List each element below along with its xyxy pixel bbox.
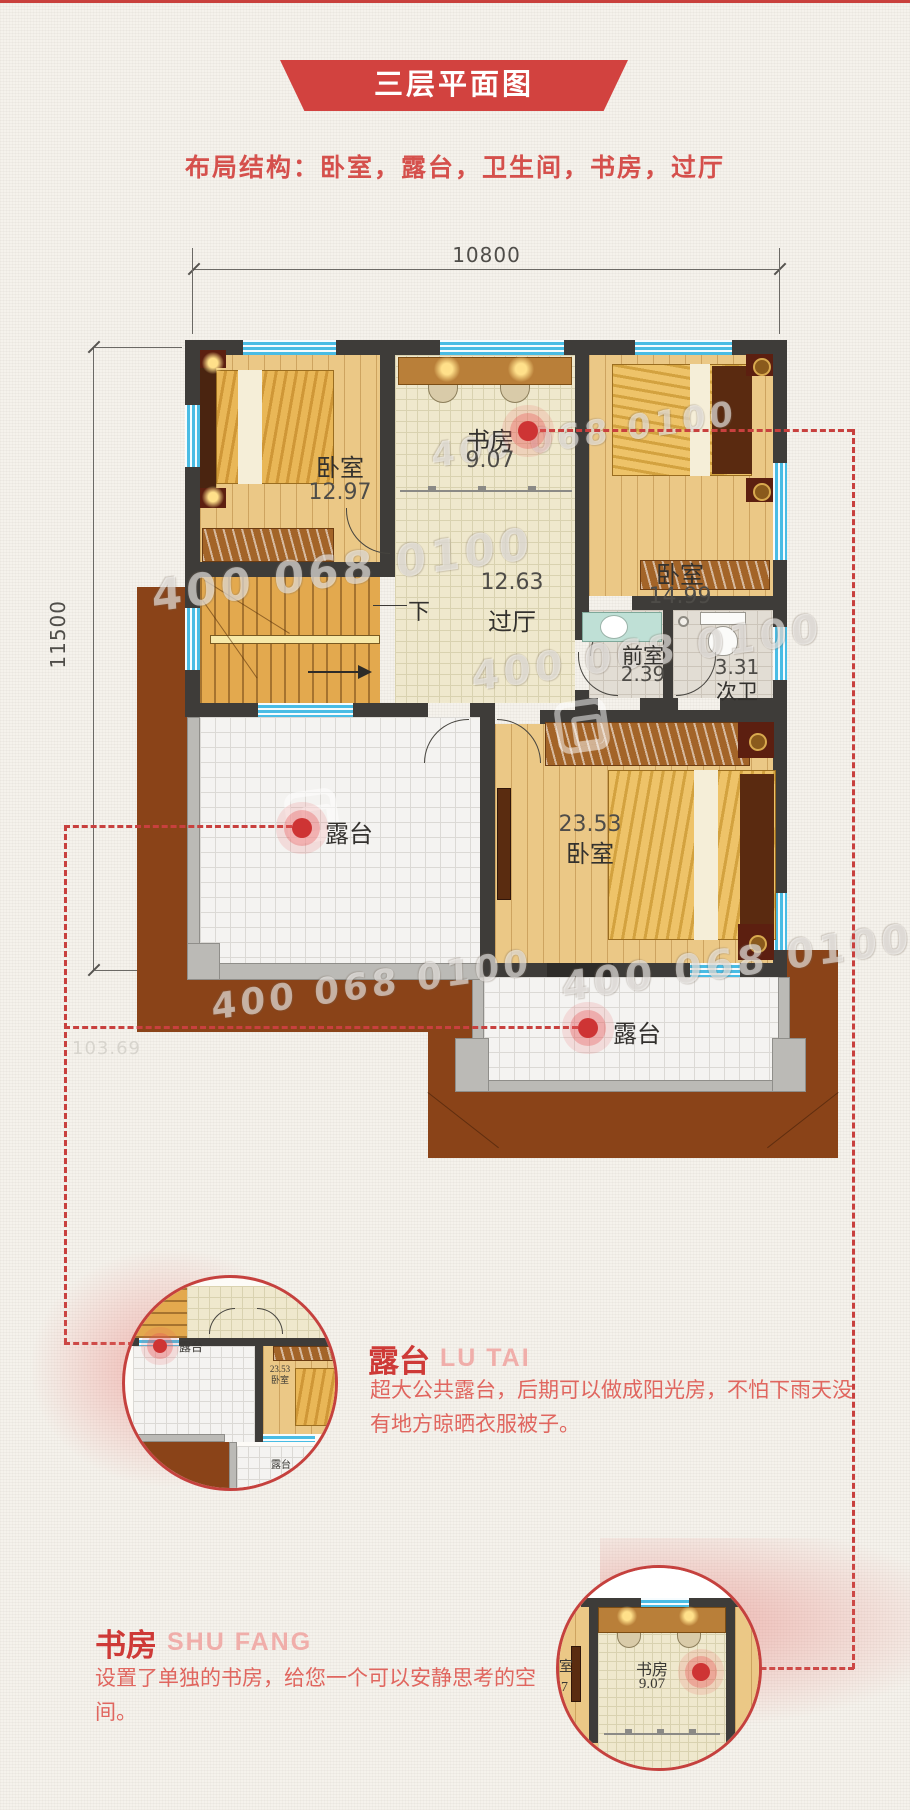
wall [185, 703, 258, 717]
nightstand [746, 478, 773, 502]
roof-left-strip [137, 587, 187, 982]
callout-connector [64, 1342, 134, 1345]
dimension-extension [779, 248, 780, 334]
wall [640, 698, 678, 710]
boundary-notch [625, 1729, 632, 1733]
callout-connector [852, 429, 855, 1669]
stair-arrow-line [308, 671, 360, 673]
room-label-terrace1: 露台 [325, 814, 373, 849]
callout-connector [64, 825, 292, 828]
room-label-hall: 过厅 [452, 602, 572, 637]
stair-handrail [210, 635, 380, 644]
callout-connector [64, 825, 67, 1344]
lamp-glow [202, 352, 224, 374]
study-desks [398, 357, 572, 385]
page: 三层平面图 布局结构：卧室，露台，卫生间，书房，过厅 10800 11500 1… [0, 0, 910, 1810]
dimension-height-line [93, 347, 94, 970]
parapet-corner [187, 943, 220, 980]
wall [575, 596, 588, 610]
window [635, 340, 732, 355]
wall-bedroom3-left [480, 703, 495, 977]
wall-study-bedroom2 [575, 355, 589, 610]
dimension-width-line [193, 269, 780, 270]
callout-connector [64, 1026, 578, 1029]
mini-wardrobe [273, 1346, 335, 1361]
mini-bed [295, 1368, 338, 1426]
stair-leader-line [373, 605, 407, 606]
page-title: 三层平面图 [374, 69, 534, 101]
dimension-extension [192, 248, 193, 334]
bed-sheet [694, 770, 718, 940]
header-rule [0, 0, 910, 3]
wall [353, 703, 428, 717]
dimension-width-label: 10800 [193, 243, 780, 267]
mini-lamp-glow [617, 1606, 637, 1626]
mini-study-area: 9.07 [598, 1676, 706, 1693]
terrace-section-latin: LU TAI [440, 1344, 531, 1373]
mini-parapet [229, 1442, 237, 1491]
window [258, 703, 353, 717]
mini-wall [255, 1346, 263, 1442]
room-label-terrace2: 露台 [613, 1014, 661, 1049]
terrace-section-body: 超大公共露台，后期可以做成阳光房，不怕下雨天没有地方晾晒衣服被子。 [370, 1374, 862, 1442]
lamp-glow [434, 356, 460, 382]
study-callout-circle: 书房 9.07 室 7 [556, 1565, 762, 1771]
room-area-bedroom1: 12.97 [280, 480, 400, 505]
terrace-callout-circle: 23.53卧室 露台 露台 [122, 1275, 338, 1491]
stair-arrow-head [358, 665, 372, 679]
boundary-notch [689, 1729, 696, 1733]
mini-terrace2-label: 露台 [271, 1456, 291, 1471]
parapet-pillar [772, 1038, 806, 1092]
mini-marker-dot [153, 1339, 167, 1353]
mini-terrace-label: 露台 [179, 1338, 203, 1355]
watermark-logo [553, 697, 612, 756]
page-subtitle: 布局结构：卧室，露台，卫生间，书房，过厅 [0, 148, 910, 184]
mini-exterior [559, 1568, 762, 1598]
mini-wall [726, 1607, 735, 1743]
boundary-notch [657, 1729, 664, 1733]
room-label-bedroom3: 卧室 [530, 834, 650, 869]
room-area-anteroom: 2.39 [596, 662, 690, 686]
boundary-notch [478, 486, 486, 490]
tv-console [497, 788, 511, 900]
window [185, 405, 200, 467]
room-label-bathroom: 次卫 [690, 676, 784, 706]
room-area-study: 9.07 [430, 448, 550, 473]
callout-connector [540, 429, 853, 432]
dimension-extension [94, 347, 182, 348]
stair-direction-label: 下 [408, 594, 430, 626]
bed-headboard [200, 368, 216, 488]
mini-roof [125, 1442, 229, 1491]
marker-dot-terrace2 [578, 1018, 598, 1038]
mini-window [641, 1598, 689, 1607]
mini-window [263, 1434, 315, 1442]
parapet [472, 1080, 790, 1092]
mini-lamp-glow [679, 1606, 699, 1626]
room-label-bedroom1: 卧室 [280, 448, 400, 483]
boundary-notch [528, 486, 536, 490]
window [773, 463, 787, 560]
study-section-latin: SHU FANG [167, 1628, 312, 1657]
marker-dot-terrace1 [292, 818, 312, 838]
study-section-body: 设置了单独的书房，给您一个可以安静思考的空间。 [95, 1662, 565, 1730]
boundary-notch [428, 486, 436, 490]
bed-pillows [740, 774, 774, 936]
study-section-title: 书房 [95, 1620, 157, 1665]
nightstand [738, 722, 774, 758]
window [440, 340, 564, 355]
marker-dot-study [518, 421, 538, 441]
mini-marker-dot [692, 1663, 710, 1681]
lamp-glow [202, 486, 224, 508]
mini-stairs [125, 1286, 187, 1338]
room-area-hall: 12.63 [452, 570, 572, 595]
mini-open-boundary [604, 1733, 720, 1735]
open-boundary [400, 490, 572, 492]
mini-terrace [133, 1346, 255, 1442]
dimension-extension [94, 970, 138, 971]
parapet-pillar [455, 1038, 489, 1092]
total-area-label: 103.69 [72, 1038, 141, 1059]
lamp-glow [508, 356, 534, 382]
mini-wall [589, 1607, 598, 1743]
dimension-height-label: 11500 [46, 600, 70, 669]
room-area-bedroom2: 14.99 [620, 584, 740, 609]
parapet [187, 717, 200, 980]
mini-parapet [133, 1434, 225, 1442]
page-title-banner: 三层平面图 [280, 60, 628, 111]
bed-sheet [238, 370, 262, 484]
window [243, 340, 336, 355]
nightstand [746, 354, 773, 376]
mini-bedroom-label: 23.53卧室 [263, 1364, 297, 1386]
